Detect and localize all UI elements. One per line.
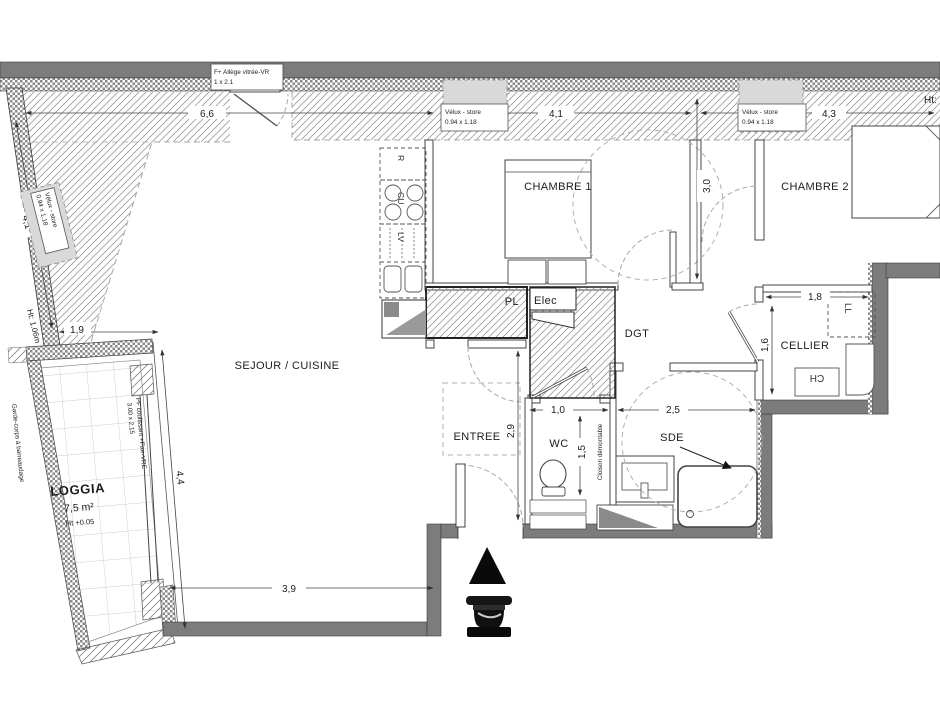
dim-loggia-side: 4,4 — [173, 470, 185, 485]
elec-label: Elec — [534, 295, 557, 307]
dim-wc-width: 1,0 — [551, 405, 565, 416]
under-basin-cabinet — [597, 505, 673, 530]
water-heater-label: CH — [810, 372, 824, 383]
floor-plan-drawing: LOGGIA 7,5 m² Ht +0.05 Garde-corps à bar… — [0, 0, 940, 705]
room-label-pl: PL — [505, 296, 519, 308]
sink-corner-unit — [382, 300, 426, 338]
dishwasher-label: LV — [396, 232, 406, 242]
loggia-area: 7,5 m² — [64, 501, 95, 515]
dim-sde-width: 2,5 — [666, 405, 680, 416]
room-label-chambre2: CHAMBRE 2 — [781, 181, 849, 193]
dim-chambre1-depth: 3,0 — [702, 179, 713, 193]
dim-top-left: 6,6 — [200, 109, 214, 120]
velux-2: Vélux - store 0.94 x 1.18 — [738, 80, 806, 132]
cellier-niche — [846, 344, 874, 395]
top-window-line1: F+ Allège vitrée-VR — [214, 69, 270, 76]
dim-cellier-width: 1,8 — [808, 292, 822, 303]
toilet — [540, 460, 566, 496]
dim-wc-depth: 1,5 — [577, 445, 588, 459]
bed-chambre1 — [505, 160, 591, 258]
dim-top-mid: 4,1 — [549, 109, 563, 120]
room-label-entree: ENTREE — [453, 431, 500, 443]
dim-top-right: 4,3 — [822, 109, 836, 120]
entrance-door-leaf — [456, 464, 465, 527]
velux2-line2: 0.94 x 1.18 — [742, 119, 774, 126]
velux1-line2: 0.94 x 1.18 — [445, 119, 477, 126]
room-label-cellier: CELLIER — [781, 340, 830, 352]
top-window-line2: 1 x 2.1 — [214, 79, 234, 86]
dim-cellier-depth: 1,6 — [760, 338, 771, 352]
entrance-door-opening — [458, 523, 523, 539]
shower — [678, 466, 757, 527]
fridge-label: R — [396, 155, 406, 161]
floor-plan-page: LOGGIA 7,5 m² Ht +0.05 Garde-corps à bar… — [0, 0, 940, 705]
removable-partition-note: Cloison démontable — [597, 423, 604, 480]
velux-1: Vélux - store 0.94 x 1.18 — [441, 80, 508, 131]
note-ht-right: Ht: — [924, 95, 937, 106]
cooktop-label: CU — [396, 192, 406, 204]
dim-sejour-bottom: 3,9 — [282, 584, 296, 595]
room-label-chambre1: CHAMBRE 1 — [524, 181, 592, 193]
pl-closet — [426, 287, 527, 338]
dim-nook: 1,9 — [70, 325, 84, 336]
room-label-wc: WC — [549, 438, 568, 450]
room-label-sde: SDE — [660, 432, 684, 444]
bed-chambre2 — [852, 126, 940, 218]
washer-label: LL — [842, 303, 853, 314]
velux2-line1: Vélux - store — [742, 109, 778, 116]
top-window-label: F+ Allège vitrée-VR 1 x 2.1 — [211, 64, 283, 90]
dim-entree-depth: 2,9 — [506, 424, 517, 438]
room-label-dgt: DGT — [625, 328, 649, 340]
velux1-line1: Vélux - store — [445, 109, 481, 116]
room-label-sejour: SEJOUR / CUISINE — [235, 360, 340, 372]
